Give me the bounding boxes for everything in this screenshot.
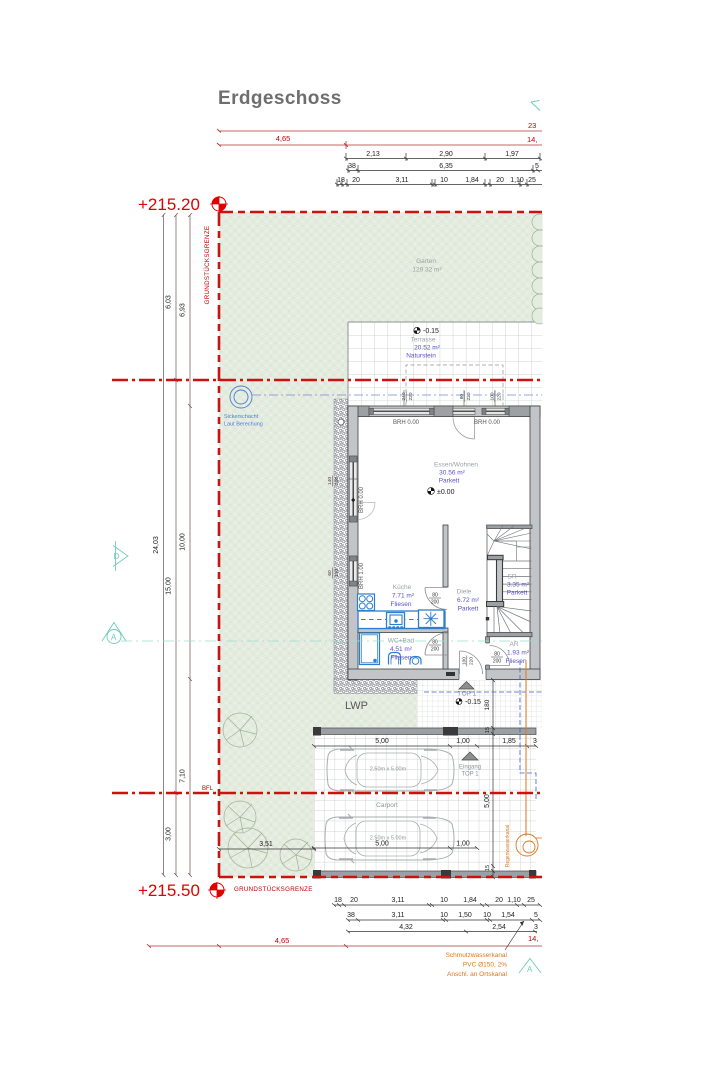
svg-text:TOP 1: TOP 1: [458, 691, 477, 698]
svg-text:+215.50: +215.50: [138, 881, 200, 900]
svg-text:1,84: 1,84: [465, 177, 479, 184]
svg-text:140: 140: [327, 477, 333, 485]
svg-text:10: 10: [440, 897, 448, 904]
svg-text:4.51 m²: 4.51 m²: [390, 646, 413, 653]
svg-text:5: 5: [535, 163, 539, 170]
svg-text:3: 3: [533, 738, 537, 745]
svg-text:220: 220: [408, 392, 414, 400]
svg-text:Parkett: Parkett: [458, 606, 479, 613]
svg-text:3,00: 3,00: [166, 827, 173, 841]
svg-text:BFL: BFL: [202, 786, 214, 792]
svg-text:38: 38: [348, 163, 356, 170]
svg-text:10,00: 10,00: [180, 533, 187, 551]
svg-text:6,93: 6,93: [180, 303, 187, 317]
svg-text:220: 220: [468, 657, 474, 665]
svg-text:1,85: 1,85: [502, 738, 516, 745]
svg-text:±0.00: ±0.00: [437, 489, 455, 496]
svg-text:3: 3: [534, 924, 538, 931]
svg-text:220: 220: [496, 392, 502, 400]
svg-text:3,11: 3,11: [391, 897, 404, 904]
svg-text:20.52 m²: 20.52 m²: [414, 345, 440, 352]
svg-text:Fliesen: Fliesen: [391, 655, 412, 662]
svg-text:Eingang: Eingang: [459, 765, 481, 771]
svg-text:D: D: [114, 552, 120, 561]
svg-text:Naturstein: Naturstein: [406, 353, 436, 360]
svg-text:Sickerschacht: Sickerschacht: [224, 414, 259, 420]
svg-text:TOP 1: TOP 1: [461, 772, 479, 778]
svg-text:Fliesen: Fliesen: [506, 658, 527, 665]
svg-text:3,11: 3,11: [395, 177, 408, 184]
svg-text:3.35 m²: 3.35 m²: [507, 582, 530, 589]
svg-text:1,10: 1,10: [507, 897, 521, 904]
svg-text:100: 100: [461, 657, 467, 665]
svg-text:LWP: LWP: [345, 700, 368, 712]
svg-text:80: 80: [432, 593, 438, 599]
svg-text:1,00: 1,00: [456, 841, 470, 848]
svg-text:Parkett: Parkett: [439, 478, 460, 485]
svg-text:2,90: 2,90: [439, 151, 453, 158]
svg-text:20: 20: [352, 177, 360, 184]
svg-text:20: 20: [496, 177, 504, 184]
svg-text:18: 18: [337, 177, 345, 184]
svg-text:10: 10: [483, 912, 491, 919]
svg-text:80: 80: [494, 652, 500, 658]
svg-text:129.32 m²: 129.32 m²: [412, 267, 442, 274]
svg-text:A: A: [527, 965, 533, 974]
svg-text:100: 100: [489, 392, 495, 400]
svg-text:Essen/Wohnen: Essen/Wohnen: [434, 462, 478, 469]
svg-text:3,51: 3,51: [259, 841, 273, 848]
svg-text:10: 10: [440, 177, 448, 184]
svg-text:15: 15: [485, 865, 491, 871]
svg-text:20: 20: [495, 897, 503, 904]
svg-text:5,00: 5,00: [375, 841, 389, 848]
svg-text:15: 15: [485, 727, 491, 733]
svg-text:38: 38: [347, 912, 355, 919]
svg-text:BRH 0.00: BRH 0.00: [474, 420, 501, 426]
svg-text:18: 18: [334, 897, 342, 904]
svg-text:25: 25: [528, 177, 536, 184]
svg-text:2,54: 2,54: [492, 924, 506, 931]
svg-text:3,11: 3,11: [391, 912, 404, 919]
svg-text:180: 180: [484, 699, 491, 710]
svg-text:200: 200: [431, 600, 440, 606]
svg-text:Schmutzwasserkanal: Schmutzwasserkanal: [446, 952, 508, 959]
svg-text:14,: 14,: [527, 135, 537, 144]
svg-text:1,10: 1,10: [510, 177, 524, 184]
svg-text:Terrasse: Terrasse: [411, 337, 436, 344]
svg-text:6,35: 6,35: [439, 163, 453, 170]
svg-text:4,32: 4,32: [399, 924, 413, 931]
svg-text:20: 20: [350, 897, 358, 904]
svg-text:A: A: [111, 633, 117, 642]
svg-text:Laut Berechung: Laut Berechung: [224, 422, 263, 428]
svg-text:Diele: Diele: [457, 589, 472, 596]
svg-text:1,50: 1,50: [458, 912, 472, 919]
svg-text:7.71 m²: 7.71 m²: [392, 593, 415, 600]
svg-text:1,84: 1,84: [463, 897, 477, 904]
svg-text:220: 220: [334, 477, 340, 485]
svg-text:SR: SR: [507, 574, 516, 581]
svg-text:140: 140: [334, 569, 340, 577]
svg-text:23: 23: [528, 121, 536, 130]
svg-text:GRUNDSTÜCKSGRENZE: GRUNDSTÜCKSGRENZE: [234, 886, 313, 893]
svg-text:1.93 m²: 1.93 m²: [507, 650, 530, 657]
svg-text:200: 200: [493, 659, 502, 665]
svg-text:BRH 1.00: BRH 1.00: [359, 562, 365, 589]
svg-text:2,13: 2,13: [366, 151, 380, 158]
svg-text:PVC Ø150, 2%: PVC Ø150, 2%: [463, 962, 507, 969]
svg-text:-0.15: -0.15: [465, 699, 481, 706]
svg-text:5,00: 5,00: [375, 738, 389, 745]
svg-text:Carport: Carport: [376, 802, 398, 809]
svg-text:-0.15: -0.15: [423, 328, 439, 335]
svg-text:4,65: 4,65: [276, 134, 291, 143]
svg-text:1,97: 1,97: [505, 151, 519, 158]
svg-text:25: 25: [527, 897, 535, 904]
svg-text:80: 80: [432, 640, 438, 646]
svg-text:220: 220: [466, 392, 472, 400]
svg-text:Parkett: Parkett: [507, 590, 528, 597]
svg-text:5,00: 5,00: [484, 794, 491, 808]
svg-text:200: 200: [431, 647, 440, 653]
svg-text:24,03: 24,03: [153, 536, 160, 554]
svg-text:15,00: 15,00: [166, 577, 173, 595]
svg-text:7,10: 7,10: [180, 769, 187, 783]
svg-text:AR: AR: [509, 641, 518, 648]
svg-text:1,00: 1,00: [456, 738, 470, 745]
svg-text:Garten: Garten: [416, 258, 436, 265]
svg-text:6,03: 6,03: [166, 295, 173, 309]
svg-text:6.72 m²: 6.72 m²: [457, 597, 480, 604]
svg-text:Erdgeschoss: Erdgeschoss: [218, 88, 342, 109]
svg-text:BRH 0.00: BRH 0.00: [393, 420, 420, 426]
svg-text:60: 60: [327, 570, 333, 576]
svg-text:5: 5: [534, 912, 538, 919]
svg-text:Regenwasserkanal: Regenwasserkanal: [505, 825, 511, 868]
svg-text:14,: 14,: [528, 934, 538, 943]
svg-text:GRUNDSTÜCKSGRENZE: GRUNDSTÜCKSGRENZE: [204, 226, 211, 305]
svg-text:1,54: 1,54: [501, 912, 515, 919]
svg-text:+215.20: +215.20: [138, 195, 200, 214]
svg-text:Anschl. an Ortskanal: Anschl. an Ortskanal: [447, 971, 508, 978]
svg-text:2.50m x 5.00m: 2.50m x 5.00m: [370, 767, 407, 773]
svg-text:Fliesen: Fliesen: [391, 601, 412, 608]
svg-text:10: 10: [440, 912, 448, 919]
svg-text:BRH 0.00: BRH 0.00: [359, 486, 365, 513]
svg-text:Küche: Küche: [393, 584, 412, 591]
svg-text:4,65: 4,65: [275, 936, 290, 945]
svg-text:30.56 m²: 30.56 m²: [439, 470, 465, 477]
